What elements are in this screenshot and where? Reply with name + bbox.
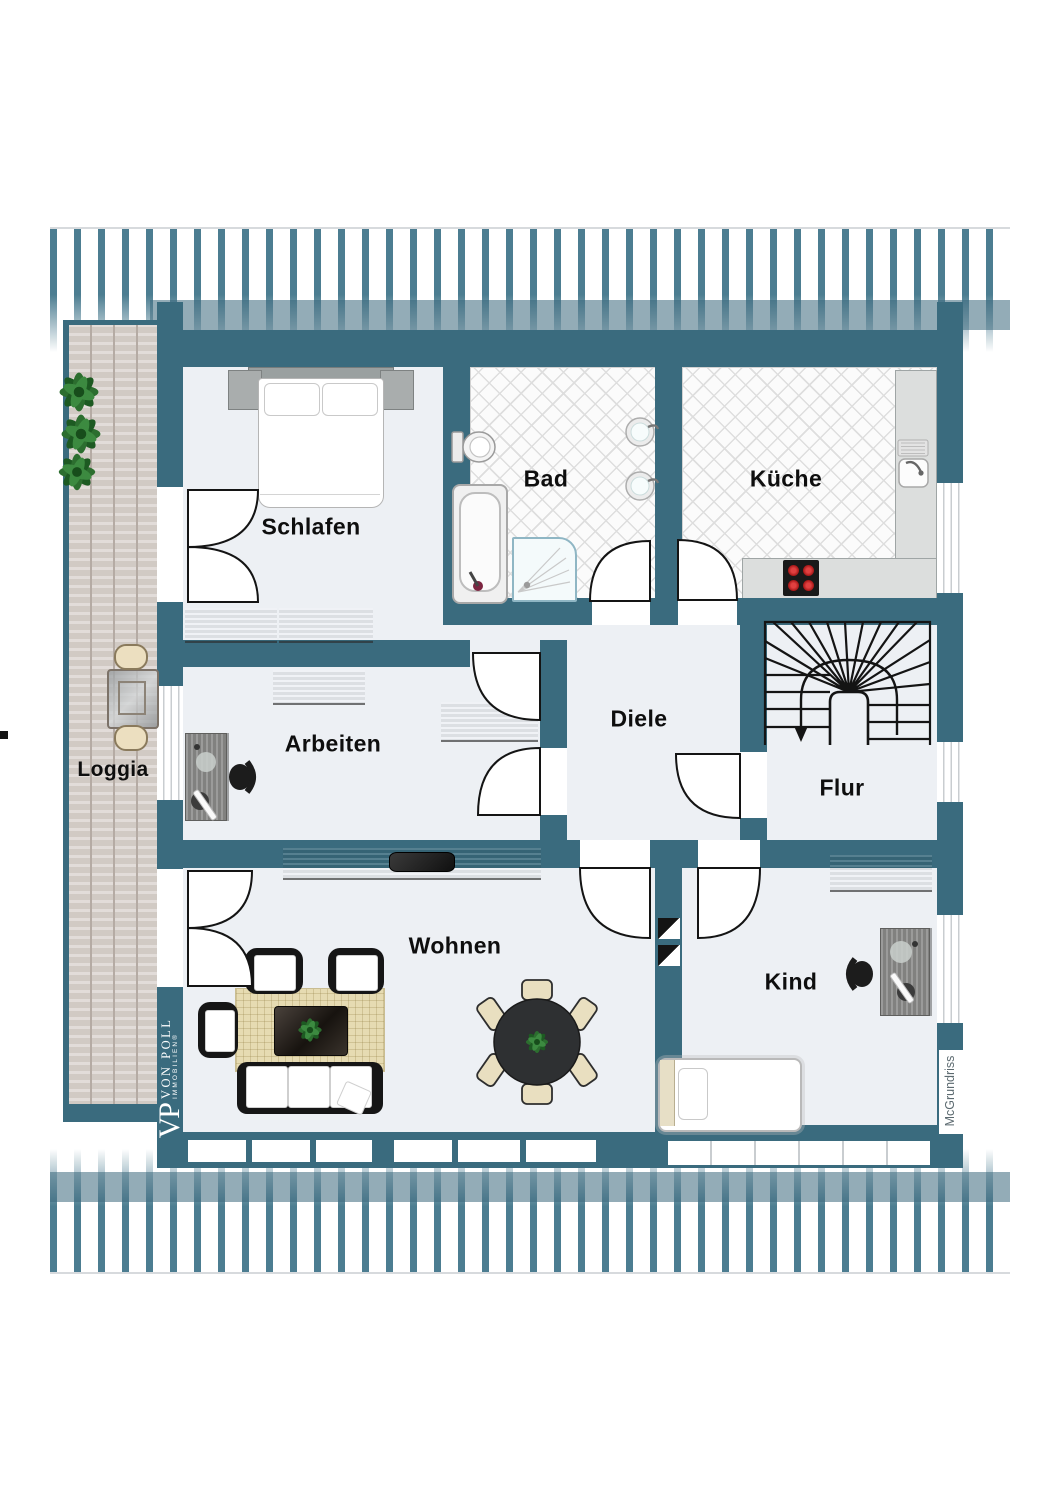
plant-icon <box>298 1018 321 1041</box>
watermark-mcgrundriss: McGrundriss <box>943 1056 957 1127</box>
stair-start-mark <box>0 731 8 739</box>
room-label-bad: Bad <box>524 466 569 493</box>
door-bad <box>590 541 650 601</box>
door-arcs <box>188 490 760 986</box>
logo-vp-monogram: VP <box>153 1104 187 1138</box>
von-poll-logo: VP VON POLL IMMOBILIEN® <box>153 1018 187 1139</box>
room-label-arbeiten: Arbeiten <box>285 731 382 758</box>
floor-plan: Schlafen Bad Küche Diele Flur Arbeiten W… <box>0 0 1060 1500</box>
vector-overlay <box>0 0 1060 1500</box>
room-label-schlafen: Schlafen <box>261 514 360 541</box>
logo-sub-text: IMMOBILIEN® <box>173 1018 180 1099</box>
room-label-loggia: Loggia <box>77 758 148 782</box>
door-schlafen-loggia <box>188 490 258 547</box>
plant-icon <box>526 1031 548 1053</box>
office-chair-icon <box>229 762 253 792</box>
sink-icon <box>626 418 658 500</box>
room-label-flur: Flur <box>819 775 864 802</box>
plant-icon <box>60 373 99 412</box>
plant-icon <box>59 454 95 490</box>
room-label-kind: Kind <box>765 969 818 996</box>
toilet-icon <box>452 432 495 462</box>
shower-detail <box>518 548 570 592</box>
door-wohnen-loggia <box>188 928 252 986</box>
room-label-diele: Diele <box>611 706 668 733</box>
door-kind <box>698 868 760 938</box>
tub-tap-icon <box>470 572 483 591</box>
office-chair-icon <box>849 959 873 989</box>
loggia-chairs <box>115 645 147 750</box>
stair-down-arrow <box>794 726 808 742</box>
door-flur <box>676 754 740 818</box>
room-label-kueche: Küche <box>750 466 822 493</box>
plant-icon <box>62 415 101 454</box>
kitchen-sink-icon <box>898 440 928 487</box>
door-arbeiten-east <box>478 748 540 815</box>
door-wohnen-loggia <box>188 871 252 928</box>
desk-detail <box>191 744 918 1004</box>
door-arbeiten-north <box>473 653 540 720</box>
door-wohnen <box>580 868 650 938</box>
room-label-wohnen: Wohnen <box>409 933 502 960</box>
door-kueche <box>678 540 737 600</box>
door-schlafen-loggia <box>188 547 258 602</box>
